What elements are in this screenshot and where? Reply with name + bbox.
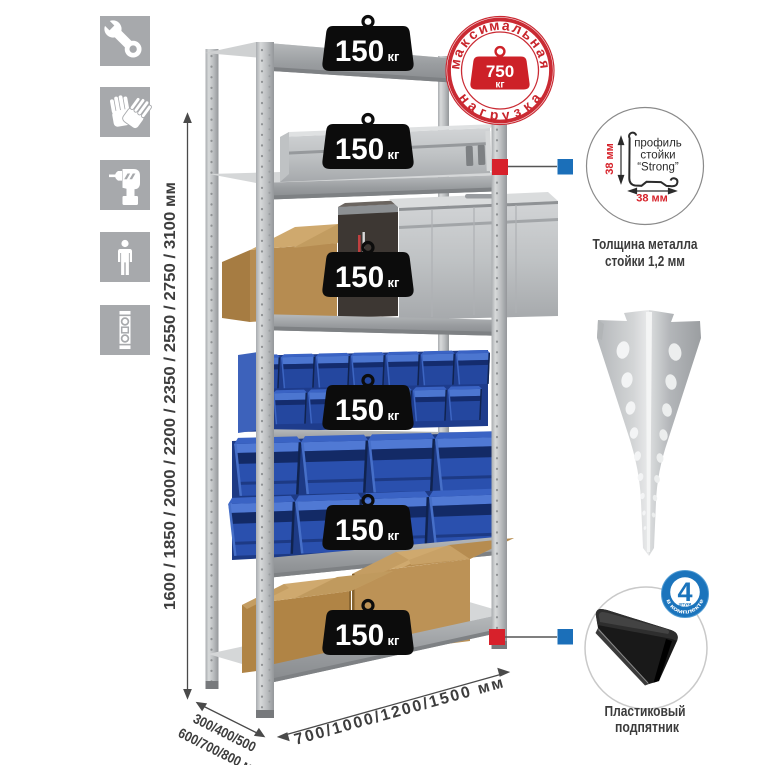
svg-text:стойки: стойки — [640, 150, 675, 162]
svg-text:1600 / 1850 / 2000 / 2200 / 23: 1600 / 1850 / 2000 / 2200 / 2350 / 2550 … — [162, 182, 179, 610]
svg-text:м: м — [446, 58, 463, 70]
svg-text:Толщина металла: Толщина металла — [593, 236, 699, 253]
svg-text:профиль: профиль — [634, 138, 682, 150]
svg-text:кг: кг — [495, 80, 504, 91]
svg-text:“Strong”: “Strong” — [637, 162, 679, 174]
svg-text:штуки: штуки — [679, 602, 692, 607]
svg-text:м: м — [488, 17, 500, 34]
svg-text:Пластиковый: Пластиковый — [605, 703, 686, 720]
svg-text:38 мм: 38 мм — [636, 193, 668, 205]
svg-text:стойки 1,2 мм: стойки 1,2 мм — [605, 253, 685, 270]
svg-text:38 мм: 38 мм — [604, 143, 616, 175]
svg-text:750: 750 — [486, 62, 514, 81]
svg-text:подпятник: подпятник — [615, 719, 679, 736]
